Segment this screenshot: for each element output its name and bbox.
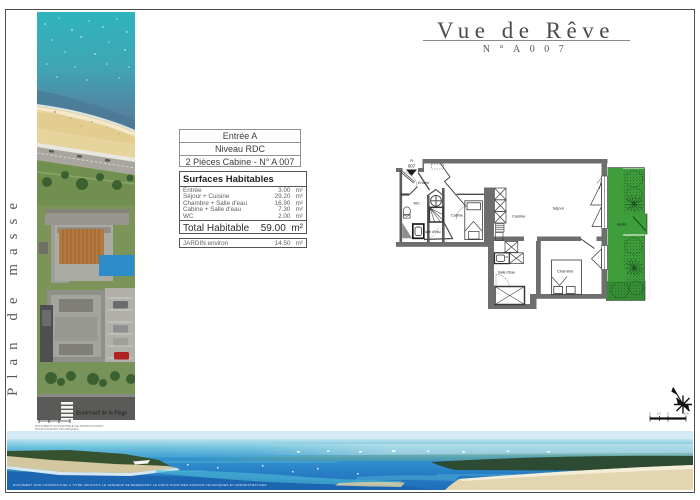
svg-text:Jardin: Jardin [617, 223, 627, 227]
svg-text:DOCUMENT NON CONTRACTUEL A TIT: DOCUMENT NON CONTRACTUEL A TITRE INDICAT… [13, 483, 267, 487]
svg-text:Chambre: Chambre [557, 269, 574, 274]
svg-text:Séjour: Séjour [553, 206, 565, 211]
svg-text:007: 007 [408, 164, 416, 169]
svg-text:0: 0 [649, 412, 651, 416]
svg-text:Cuisine: Cuisine [512, 214, 526, 219]
svg-text:3: 3 [667, 412, 669, 416]
svg-text:A: A [410, 158, 413, 163]
svg-text:Salle d'Eau: Salle d'Eau [498, 271, 515, 275]
svg-text:Salle d'Eau: Salle d'Eau [424, 230, 441, 234]
svg-text:WC: WC [414, 202, 421, 206]
svg-text:6 m: 6 m [684, 412, 688, 416]
svg-text:Cabine: Cabine [451, 214, 463, 218]
svg-text:1.5: 1.5 [657, 412, 661, 416]
svg-text:Entrée: Entrée [418, 181, 429, 185]
